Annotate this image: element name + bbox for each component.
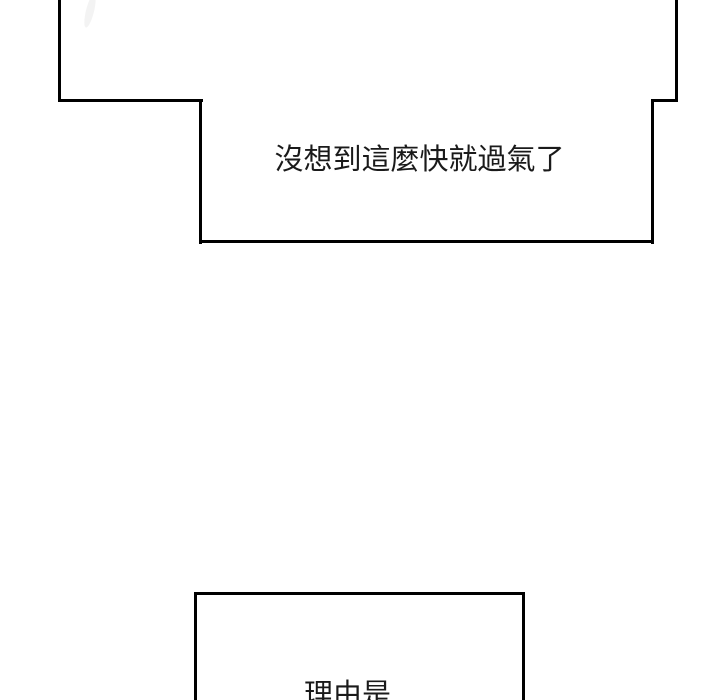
top-panel-border-bottom bbox=[199, 240, 654, 243]
top-panel-border-outer-right bbox=[675, 0, 678, 102]
top-panel-border-inner-right bbox=[651, 99, 654, 244]
bottom-panel-dialogue: 理由是 bbox=[182, 679, 513, 700]
top-panel-dialogue: 沒想到這麼快就過氣了 bbox=[192, 144, 647, 177]
comic-page: 沒想到這麼快就過氣了 理由是 bbox=[0, 0, 720, 700]
top-panel-border-shoulder-right bbox=[651, 99, 678, 102]
faint-sketch-mark bbox=[82, 0, 98, 28]
top-panel-border-outer-left bbox=[58, 0, 61, 102]
top-panel-border-shoulder-left bbox=[58, 99, 203, 102]
